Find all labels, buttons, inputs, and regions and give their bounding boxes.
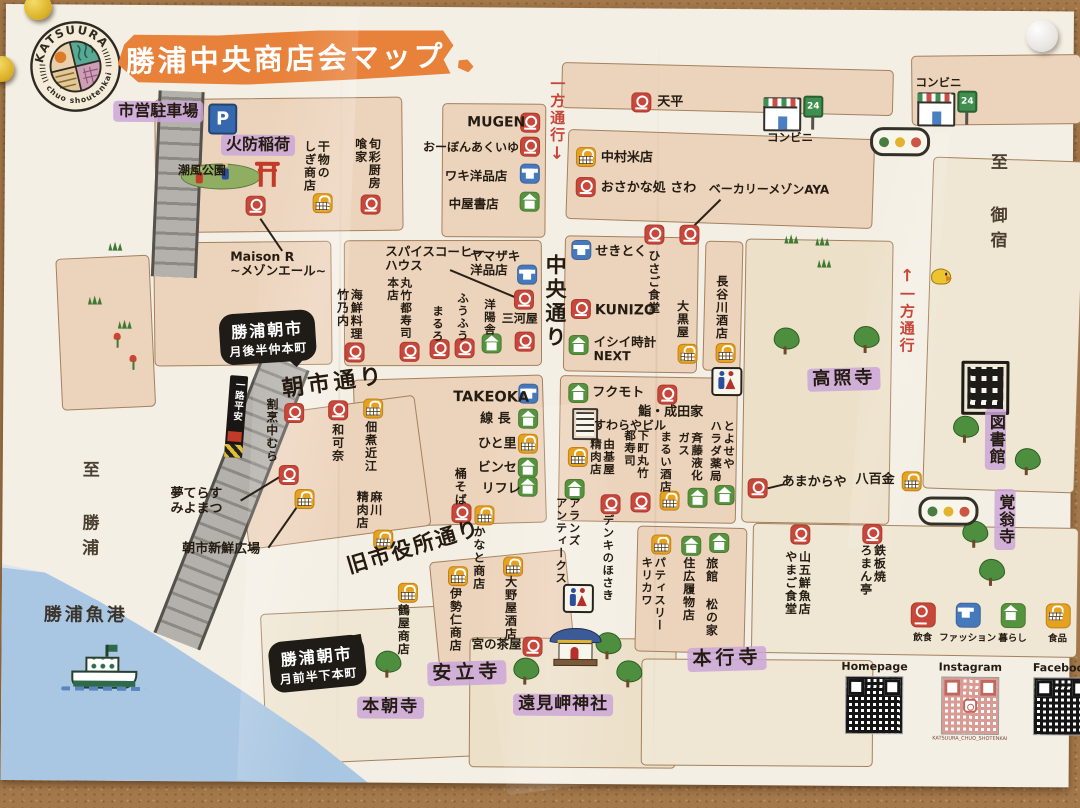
oneway-sign-top: 一方通行↓	[548, 76, 566, 164]
flower-icon	[129, 355, 137, 371]
tree-icon	[854, 326, 881, 354]
food-category-icon	[910, 602, 935, 627]
legend: 飲食ファッション暮らし食品	[907, 602, 1074, 644]
grocery-category-icon	[398, 583, 418, 603]
shop-label: まるい酒店	[659, 431, 673, 494]
tree-icon	[616, 660, 643, 688]
living-category-icon	[681, 536, 701, 556]
area-hibuse-inari: 火防稲荷	[221, 135, 295, 156]
shop-label: 住広履物店	[681, 557, 695, 622]
crossing-banner-text: 一路平安	[227, 379, 248, 422]
shop-label: ワキ洋品店	[445, 169, 508, 184]
fashion-category-icon	[571, 240, 591, 260]
area-parking-lot: 市営駐車場	[113, 101, 203, 122]
food-category-icon	[600, 494, 620, 514]
living-category-icon	[715, 485, 735, 505]
shop-label: 旅館 松の家	[704, 557, 718, 637]
grocery-category-icon	[651, 535, 671, 555]
area-anryuji-temple: 安立寺	[427, 660, 507, 686]
library-building-icon	[961, 361, 1009, 415]
convenience-store-icon	[917, 92, 955, 126]
legend-item-food: 飲食	[907, 602, 939, 643]
living-category-icon	[1000, 603, 1025, 628]
food-category-icon	[657, 385, 677, 405]
grocery-category-icon	[678, 344, 698, 364]
food-category-icon	[246, 196, 266, 216]
food-category-icon	[679, 225, 699, 245]
shop-label: コンビニ	[915, 76, 961, 89]
shop-label: 線 長	[480, 412, 511, 427]
direction-to-katsuura: 至 勝浦	[76, 461, 102, 564]
shop-label: 中村米店	[601, 151, 653, 166]
living-category-icon	[518, 409, 538, 429]
legend-label: ファッション	[939, 630, 996, 644]
area-tomisaki-shrine: 遠見岬神社	[513, 694, 613, 717]
area-hongyoji-temple: 本行寺	[687, 646, 767, 672]
torii-icon	[256, 162, 279, 187]
food-category-icon	[328, 400, 348, 420]
shop-label: 旬彩厨房 喰家	[353, 137, 381, 189]
shop-label: 斉藤液化 ガス	[677, 432, 704, 482]
flower-icon	[114, 333, 122, 349]
shop-label: 長谷川酒店	[714, 275, 728, 340]
boat-icon	[67, 644, 139, 695]
shop-label: ひと里	[478, 437, 517, 452]
shop-label: ベーカリーメゾンAYA	[709, 183, 830, 198]
homepage-label: Homepage	[841, 660, 907, 673]
living-category-icon	[709, 533, 729, 553]
food-category-icon	[644, 224, 664, 244]
toilet-icon	[563, 584, 594, 613]
food-category-icon	[630, 492, 650, 512]
banner-brush-blob	[456, 57, 475, 73]
tree-icon	[979, 559, 1006, 587]
tree-icon	[1015, 448, 1042, 476]
shop-label: 三河屋	[502, 312, 538, 326]
shop-label: 夢てらす みよまつ	[170, 487, 222, 517]
grocery-category-icon	[902, 471, 922, 491]
facebook-label: Facebook	[1033, 661, 1080, 674]
living-category-icon	[687, 488, 707, 508]
shop-label: 鶴屋商店	[395, 604, 409, 656]
food-category-icon	[400, 342, 420, 362]
instagram-icon	[963, 699, 977, 713]
shop-label: 中屋書店	[449, 197, 499, 212]
shop-label: 由基屋 精肉店	[589, 438, 615, 476]
grocery-category-icon	[313, 193, 333, 213]
parking-icon: P	[208, 103, 237, 134]
shop-label: コンビニ	[767, 131, 813, 144]
cork-board: 一路平安 KATSUURA chu	[0, 0, 1080, 808]
grocery-category-icon	[503, 556, 523, 576]
legend-label: 食品	[1048, 630, 1067, 644]
shop-label: 桶そば	[453, 467, 467, 506]
instagram-qr-code	[941, 677, 999, 735]
food-category-icon	[514, 290, 534, 310]
grocery-category-icon	[518, 434, 538, 454]
shop-label: 大野屋酒店	[503, 575, 517, 640]
grocery-category-icon	[1045, 603, 1070, 628]
legend-item-fashion: ファッション	[952, 603, 984, 644]
shop-label: 朝市新鮮広場	[182, 542, 260, 557]
shop-label: フクモト	[592, 386, 644, 401]
shop-label: おさかな処 さわ	[601, 181, 697, 196]
food-category-icon	[790, 524, 810, 544]
map-title-banner: 勝浦中央商店会マップ	[117, 27, 454, 87]
asaichi-note-shimohoncho: 勝浦朝市 月前半下本町	[267, 634, 368, 694]
area-honchoji-temple: 本朝寺	[357, 696, 424, 718]
facebook-qr-code	[1033, 677, 1080, 735]
grocery-category-icon	[363, 399, 383, 419]
shop-label: MUGEN	[467, 115, 525, 131]
grocery-category-icon	[294, 489, 314, 509]
tree-icon	[953, 416, 980, 444]
food-category-icon	[284, 403, 304, 423]
tree-icon	[513, 658, 540, 686]
grocery-category-icon	[716, 343, 736, 363]
fashion-category-icon	[955, 603, 980, 628]
shop-label: デンキのほさき	[601, 514, 615, 602]
grocery-category-icon	[568, 447, 588, 467]
shop-label: リフレ	[482, 482, 521, 497]
facebook-qr-block: Facebook	[1032, 661, 1080, 742]
shop-label: アランズ アンティークス	[554, 497, 581, 585]
area-koshoji-temple: 高照寺	[807, 367, 881, 392]
living-category-icon	[568, 383, 588, 403]
shop-label: 洋陽舎	[483, 298, 496, 336]
tree-icon	[774, 327, 801, 355]
food-category-icon	[631, 92, 651, 112]
asaichi-note-nakahoncho: 勝浦朝市 月後半仲本町	[218, 309, 317, 366]
food-category-icon	[361, 194, 381, 214]
shop-label: 麻川 精肉店	[354, 490, 382, 529]
shrine-building-icon	[549, 628, 599, 670]
shop-label: とよせや ハラダ薬局	[709, 420, 736, 483]
traffic-light-icon	[918, 496, 978, 525]
legend-item-living: 暮らし	[997, 603, 1029, 644]
shop-label: イシイ時計 NEXT	[594, 335, 657, 364]
instagram-label: Instagram	[939, 661, 1002, 674]
block	[561, 62, 894, 116]
shop-label: 八百金	[856, 473, 895, 488]
convenience-store-icon	[763, 97, 801, 131]
shop-label: ふうふう	[456, 292, 469, 342]
shop-label: おーぼんあくいゆ	[423, 141, 519, 155]
oneway-sign-right: ↑一方通行	[898, 266, 916, 354]
shop-label: 海鮮料理 竹乃内	[335, 288, 363, 340]
shop-label: 下町丸竹 都寿司	[623, 429, 650, 479]
block	[55, 255, 156, 411]
instagram-caption: KATSUURA_CHUO_SHOTENKAI	[932, 735, 1007, 742]
legend-item-grocery: 食品	[1042, 603, 1074, 644]
shop-label: せきとく	[595, 245, 647, 260]
shop-label: Maison R ~メゾンエール~	[230, 250, 326, 279]
fashion-category-icon	[520, 164, 540, 184]
open24-sign-icon: 24	[803, 96, 823, 118]
shop-label: 割烹中むら	[264, 398, 278, 463]
area-kakuoji-temple: 覚翁寺	[994, 489, 1015, 550]
area-library: 図書館	[985, 409, 1006, 470]
block-temple-grounds	[641, 658, 874, 767]
shop-label: 山五鮮魚店 やまご食堂	[783, 550, 811, 615]
legend-label: 暮らし	[998, 630, 1027, 644]
street-chuo-dori: 中央通り	[540, 254, 571, 350]
food-category-icon	[522, 637, 542, 657]
toilet-icon	[711, 367, 742, 396]
shop-label: 伊勢仁商店	[447, 587, 461, 652]
food-category-icon	[520, 137, 540, 157]
bird-icon	[931, 268, 951, 284]
homepage-qr-block: Homepage	[841, 660, 908, 741]
legend-label: 飲食	[913, 629, 932, 643]
grocery-category-icon	[659, 491, 679, 511]
shop-label: かなと商店	[471, 525, 485, 590]
block	[565, 129, 875, 229]
grocery-category-icon	[448, 566, 468, 586]
shop-label: 和可奈	[330, 423, 344, 462]
shop-label: あまからや	[782, 475, 847, 490]
food-category-icon	[571, 299, 591, 319]
grocery-category-icon	[576, 147, 596, 167]
traffic-light-icon	[870, 127, 930, 156]
food-category-icon	[279, 465, 299, 485]
map-paper: 一路平安 KATSUURA chu	[1, 4, 1074, 787]
food-category-icon	[576, 177, 596, 197]
shop-label: KUNIZO	[595, 303, 656, 319]
shop-label: 佃煮近江	[363, 421, 377, 473]
katsuura-port-label: 勝浦魚港	[44, 600, 128, 627]
shop-label: 丸竹都寿司 本店	[386, 277, 413, 340]
food-category-icon	[515, 332, 535, 352]
shop-label: 鉄板焼 ろまん亭	[858, 544, 886, 596]
shop-label: まるろ	[431, 305, 444, 343]
shop-label: 大黒屋	[675, 300, 689, 339]
shop-label: TAKEOKA	[453, 389, 529, 406]
pushpin	[1026, 20, 1058, 52]
social-links: Homepage Instagram KATSUURA_CHUO_SHOTENK…	[841, 660, 1080, 743]
homepage-qr-code	[845, 676, 903, 734]
living-category-icon	[569, 335, 589, 355]
shop-label: ビンセ	[478, 461, 517, 476]
instagram-qr-block: Instagram KATSUURA_CHUO_SHOTENKAI	[932, 660, 1008, 742]
living-category-icon	[518, 458, 538, 478]
living-category-icon	[520, 192, 540, 212]
shop-label: 天平	[657, 96, 683, 111]
direction-to-onjuku: 至 御宿	[984, 153, 1010, 256]
shop-label: 干物の しぎ商店	[302, 140, 330, 192]
food-category-icon	[862, 524, 882, 544]
shop-label: パティスリー キリカワ	[640, 556, 667, 631]
grass-icon	[108, 241, 124, 251]
map-title: 勝浦中央商店会マップ	[125, 33, 446, 81]
area-shiokaze-park: 潮風公園	[173, 162, 231, 179]
food-category-icon	[748, 478, 768, 498]
open24-sign-icon: 24	[957, 91, 977, 113]
shop-label: ヤマザキ 洋品店	[470, 249, 520, 278]
